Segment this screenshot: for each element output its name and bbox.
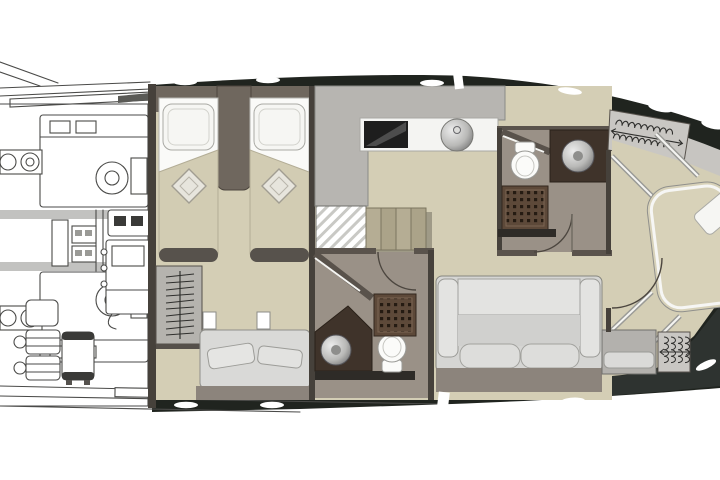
mid-bulkhead xyxy=(309,86,315,400)
sofa-lower-back xyxy=(458,315,580,346)
sofa-cushion xyxy=(460,344,520,368)
side-table xyxy=(203,312,216,329)
sofa-plinth xyxy=(436,368,602,392)
stair-step xyxy=(381,208,396,250)
galley-hatch xyxy=(316,206,366,250)
twin-bed-cabin xyxy=(156,86,314,400)
twin-bed-right xyxy=(250,98,309,262)
footboard xyxy=(159,248,218,262)
bow-mini-locker xyxy=(658,332,690,372)
sofa-armrest xyxy=(580,279,600,357)
vanity xyxy=(550,130,610,182)
forward-bathroom xyxy=(497,126,612,256)
gunwale-gap xyxy=(437,391,450,407)
battery-bank xyxy=(72,226,96,262)
bow-bulkhead xyxy=(606,150,611,254)
mid-bathroom xyxy=(315,248,434,400)
twin-bed-left xyxy=(159,98,218,262)
toilet xyxy=(511,142,539,179)
stair-step xyxy=(366,208,381,250)
settee xyxy=(196,330,314,400)
nightstand xyxy=(217,86,251,190)
water-heater xyxy=(62,332,94,385)
salon-seating xyxy=(436,276,602,392)
bathroom-wall xyxy=(428,250,434,400)
sofa-backrest xyxy=(458,279,580,315)
footboard xyxy=(250,248,309,262)
bench-seat xyxy=(602,330,656,374)
stair-step xyxy=(396,208,411,250)
sofa-armrest xyxy=(438,279,458,357)
toilet xyxy=(378,334,406,372)
staircase xyxy=(366,208,432,254)
gunwale-gap xyxy=(453,73,464,89)
control-panel xyxy=(108,210,150,236)
galley-sink xyxy=(441,119,473,151)
sofa-cushion xyxy=(521,344,579,368)
bow-bulkhead xyxy=(606,308,611,332)
floor-plan-canvas xyxy=(0,0,720,480)
cleat xyxy=(256,77,280,83)
engine-port xyxy=(0,115,148,207)
cleat xyxy=(420,80,444,86)
side-table xyxy=(257,312,270,329)
shower-grid xyxy=(374,294,416,336)
stair-step xyxy=(411,208,426,250)
cooktop xyxy=(364,121,408,148)
yacht-floor-plan-image xyxy=(0,0,720,480)
hanging-locker xyxy=(156,266,202,349)
shower-grid xyxy=(502,186,548,230)
cleat xyxy=(174,402,198,408)
cleat xyxy=(173,79,197,85)
cleat xyxy=(260,402,284,408)
settee-plinth xyxy=(196,386,314,400)
aft-bulkhead xyxy=(148,84,156,408)
shower-plinth xyxy=(498,229,556,237)
electrical-panel xyxy=(52,220,68,266)
